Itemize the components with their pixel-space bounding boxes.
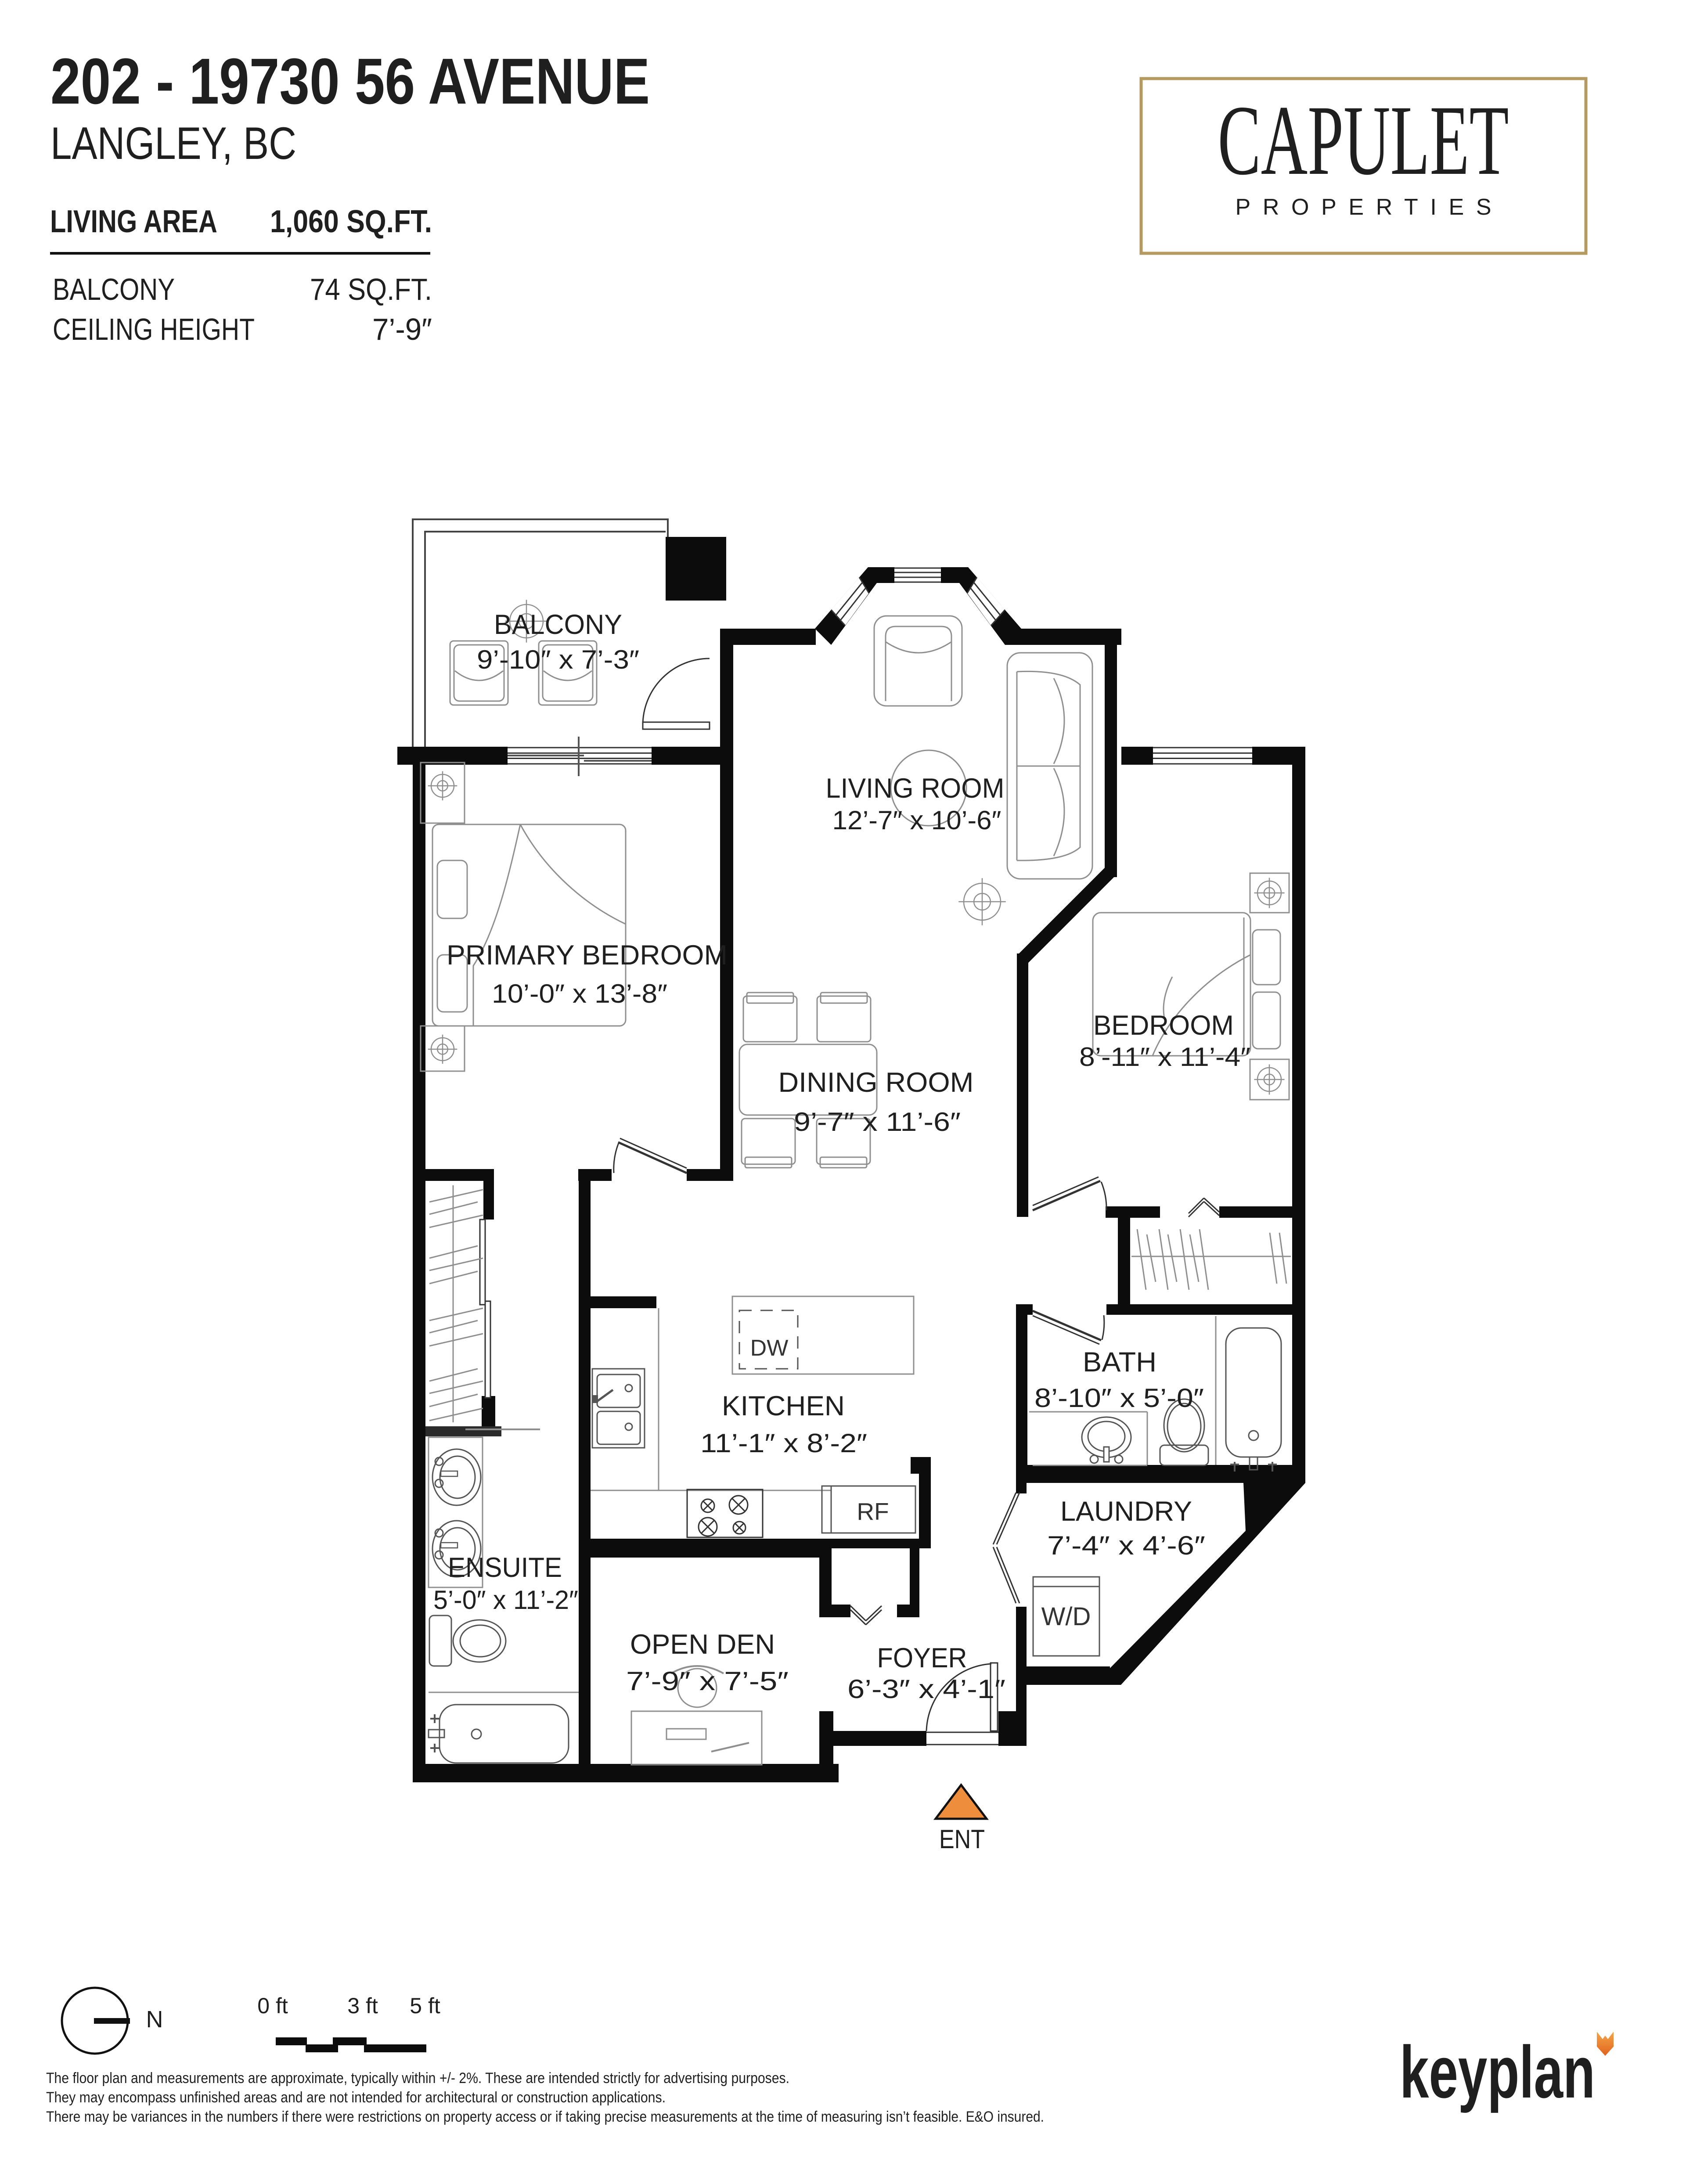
svg-text:LAUNDRY: LAUNDRY — [1060, 1496, 1192, 1527]
svg-text:The floor plan and measurement: The floor plan and measurements are appr… — [46, 2070, 789, 2087]
svg-text:6’-3″ x 4’-1″: 6’-3″ x 4’-1″ — [847, 1674, 1005, 1704]
svg-text:N: N — [146, 2006, 163, 2033]
svg-text:8’-11″ x 11’-4″: 8’-11″ x 11’-4″ — [1079, 1042, 1250, 1072]
svg-text:0 ft: 0 ft — [257, 1993, 288, 2018]
svg-text:DW: DW — [750, 1335, 789, 1361]
svg-text:keyplan: keyplan — [1400, 2031, 1595, 2113]
svg-text:BEDROOM: BEDROOM — [1093, 1010, 1234, 1041]
svg-text:7’-9″ x 7’-5″: 7’-9″ x 7’-5″ — [626, 1666, 789, 1696]
svg-text:7’-4″ x 4’-6″: 7’-4″ x 4’-6″ — [1047, 1531, 1205, 1560]
svg-text:202 - 19730 56 AVENUE: 202 - 19730 56 AVENUE — [50, 45, 650, 118]
svg-text:CAPULET: CAPULET — [1218, 85, 1509, 196]
svg-text:ENSUITE: ENSUITE — [448, 1552, 562, 1583]
svg-text:11’-1″ x 8’-2″: 11’-1″ x 8’-2″ — [700, 1428, 867, 1458]
svg-text:BATH: BATH — [1083, 1347, 1156, 1378]
svg-text:BALCONY: BALCONY — [494, 609, 622, 640]
svg-text:7’-9″: 7’-9″ — [372, 312, 432, 346]
svg-text:RF: RF — [857, 1498, 889, 1525]
svg-text:5’-0″ x 11’-2″: 5’-0″ x 11’-2″ — [433, 1585, 578, 1615]
svg-text:BALCONY: BALCONY — [53, 272, 175, 306]
svg-text:FOYER: FOYER — [877, 1643, 967, 1673]
svg-text:3 ft: 3 ft — [347, 1993, 378, 2018]
svg-text:8’-10″ x 5’-0″: 8’-10″ x 5’-0″ — [1034, 1383, 1204, 1413]
svg-text:74 SQ.FT.: 74 SQ.FT. — [310, 272, 432, 306]
svg-text:9’-10″ x 7’-3″: 9’-10″ x 7’-3″ — [477, 645, 639, 674]
svg-text:9’-7″ x 11’-6″: 9’-7″ x 11’-6″ — [794, 1107, 961, 1137]
svg-text:10’-0″ x 13’-8″: 10’-0″ x 13’-8″ — [492, 979, 667, 1008]
svg-text:CEILING HEIGHT: CEILING HEIGHT — [53, 312, 255, 346]
svg-text:PRIMARY BEDROOM: PRIMARY BEDROOM — [447, 940, 728, 971]
svg-text:DINING ROOM: DINING ROOM — [778, 1067, 974, 1098]
svg-text:PROPERTIES: PROPERTIES — [1236, 194, 1491, 220]
svg-text:KITCHEN: KITCHEN — [722, 1391, 845, 1421]
svg-text:ENT: ENT — [939, 1824, 985, 1854]
svg-text:5 ft: 5 ft — [410, 1993, 440, 2018]
svg-text:LIVING AREA: LIVING AREA — [50, 204, 217, 239]
svg-text:12’-7″ x 10’-6″: 12’-7″ x 10’-6″ — [832, 806, 1002, 835]
svg-text:W/D: W/D — [1041, 1602, 1091, 1631]
svg-text:They may encompass unfinished: They may encompass unfinished areas and … — [46, 2089, 666, 2106]
svg-text:There may be variances in the: There may be variances in the numbers if… — [46, 2108, 1044, 2125]
svg-text:LANGLEY, BC: LANGLEY, BC — [50, 118, 296, 169]
svg-text:LIVING ROOM: LIVING ROOM — [826, 773, 1005, 804]
svg-text:OPEN DEN: OPEN DEN — [630, 1629, 775, 1660]
svg-text:1,060 SQ.FT.: 1,060 SQ.FT. — [270, 204, 432, 239]
